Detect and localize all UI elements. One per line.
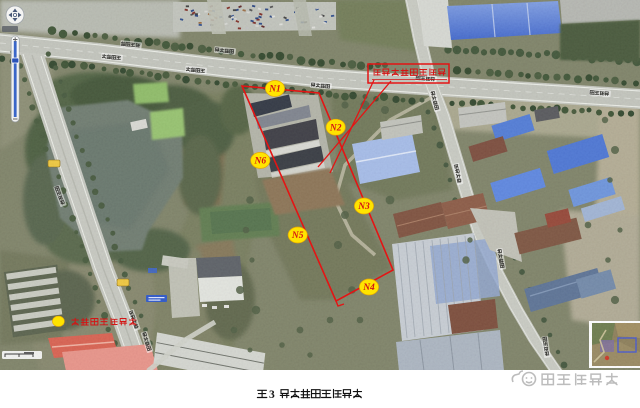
- svg-text:N3: N3: [357, 202, 370, 212]
- svg-text:3: 3: [269, 389, 275, 401]
- svg-text:N5: N5: [291, 231, 304, 241]
- svg-text:N4: N4: [362, 283, 375, 293]
- svg-text:N2: N2: [329, 123, 342, 133]
- svg-text:N1: N1: [268, 85, 281, 95]
- svg-text:N6: N6: [253, 157, 266, 167]
